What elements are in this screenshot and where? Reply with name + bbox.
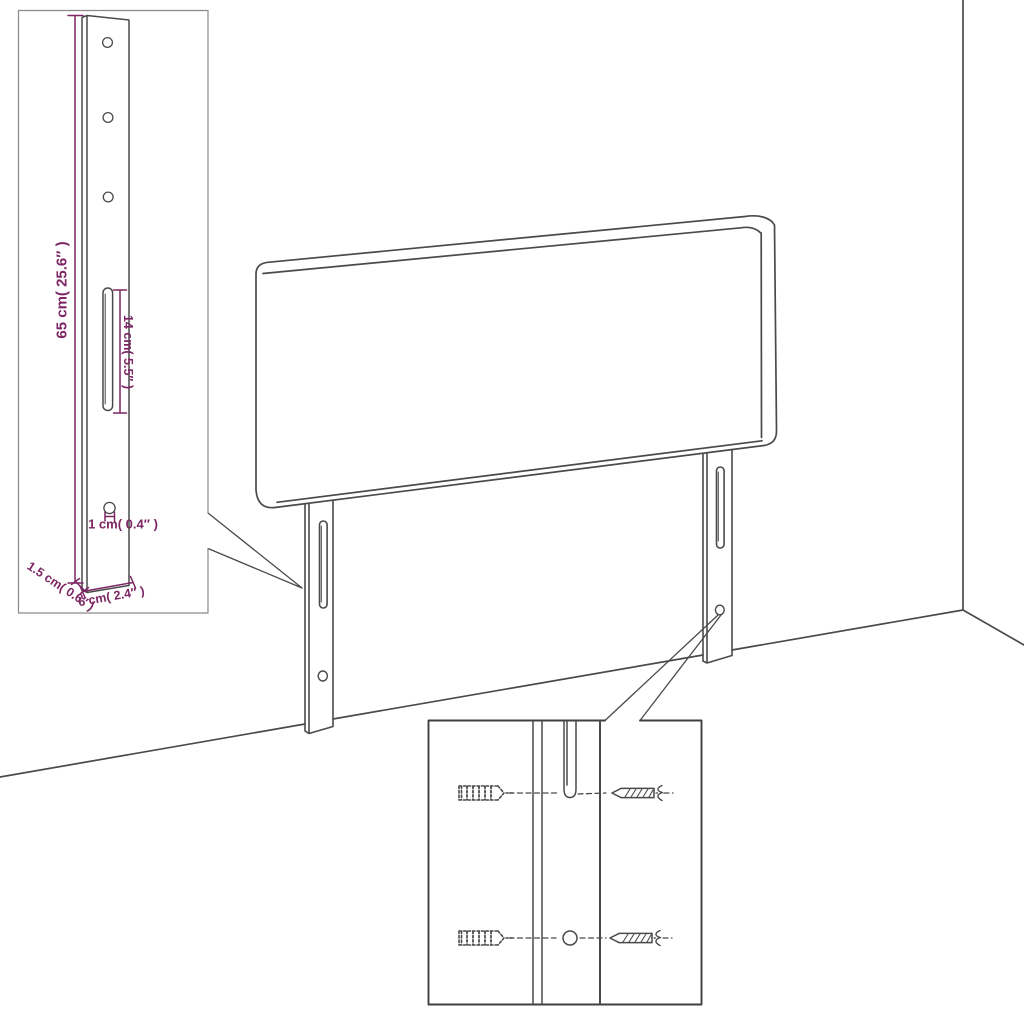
right-leg-screw-hole — [715, 605, 724, 615]
bracket-outline-group — [82, 16, 129, 593]
closeup-slot — [564, 721, 576, 798]
bracket-slot — [103, 288, 113, 411]
left-mounting-leg — [305, 500, 333, 734]
hardware-inset-border — [429, 721, 702, 1005]
dash-top-right — [578, 793, 606, 794]
dimension-lines — [68, 16, 136, 598]
wall-plug-bottom — [459, 931, 515, 945]
room-corner-lines — [0, 0, 1024, 777]
dim-hole-label: 1 cm( 0.4″ ) — [88, 517, 158, 532]
floor-line-a — [0, 724, 305, 777]
bracket-hole-2 — [103, 113, 113, 123]
left-leg-screw-hole — [318, 671, 327, 681]
closeup-screw-hole — [563, 931, 577, 945]
right-leg-outline — [703, 450, 732, 664]
bracket-inset-callout — [208, 513, 302, 588]
right-mounting-leg — [703, 450, 732, 664]
floor-line-c — [732, 610, 963, 650]
dim-slot-label: 14 cm( 5.5″ ) — [121, 315, 135, 389]
closeup-strip-edges — [533, 721, 542, 1004]
right-leg-slot — [717, 467, 725, 548]
screw-bottom — [610, 931, 661, 946]
dim-height-label: 65 cm( 25.6″ ) — [54, 241, 71, 338]
dimension-labels: 65 cm( 25.6″ ) 14 cm( 5.5″ ) 1 cm( 0.4″ … — [25, 241, 158, 613]
bracket-hole-1 — [103, 38, 113, 48]
headboard-panel — [256, 216, 777, 508]
product-diagram-page: 65 cm( 25.6″ ) 14 cm( 5.5″ ) 1 cm( 0.4″ … — [0, 0, 1024, 1024]
floor-line-b — [333, 655, 703, 719]
screw-top — [612, 786, 663, 801]
headboard-outline — [256, 216, 777, 508]
leg-strip-closeup — [533, 721, 600, 1004]
bracket-hole-3 — [103, 192, 113, 202]
bracket-callout-lines — [208, 513, 302, 588]
headboard-edge-creases — [263, 227, 762, 502]
hardware-detail-inset — [429, 721, 702, 1005]
headboard-dimension-diagram: 65 cm( 25.6″ ) 14 cm( 5.5″ ) 1 cm( 0.4″ … — [0, 0, 1024, 1024]
dim-thickness-label: 1.5 cm( 0.6″ ) — [25, 559, 97, 613]
left-leg-slot — [320, 521, 328, 608]
bracket-detail-inset: 65 cm( 25.6″ ) 14 cm( 5.5″ ) 1 cm( 0.4″ … — [19, 11, 209, 614]
wall-plug-top — [459, 786, 515, 800]
floor-line-right — [963, 610, 1024, 645]
